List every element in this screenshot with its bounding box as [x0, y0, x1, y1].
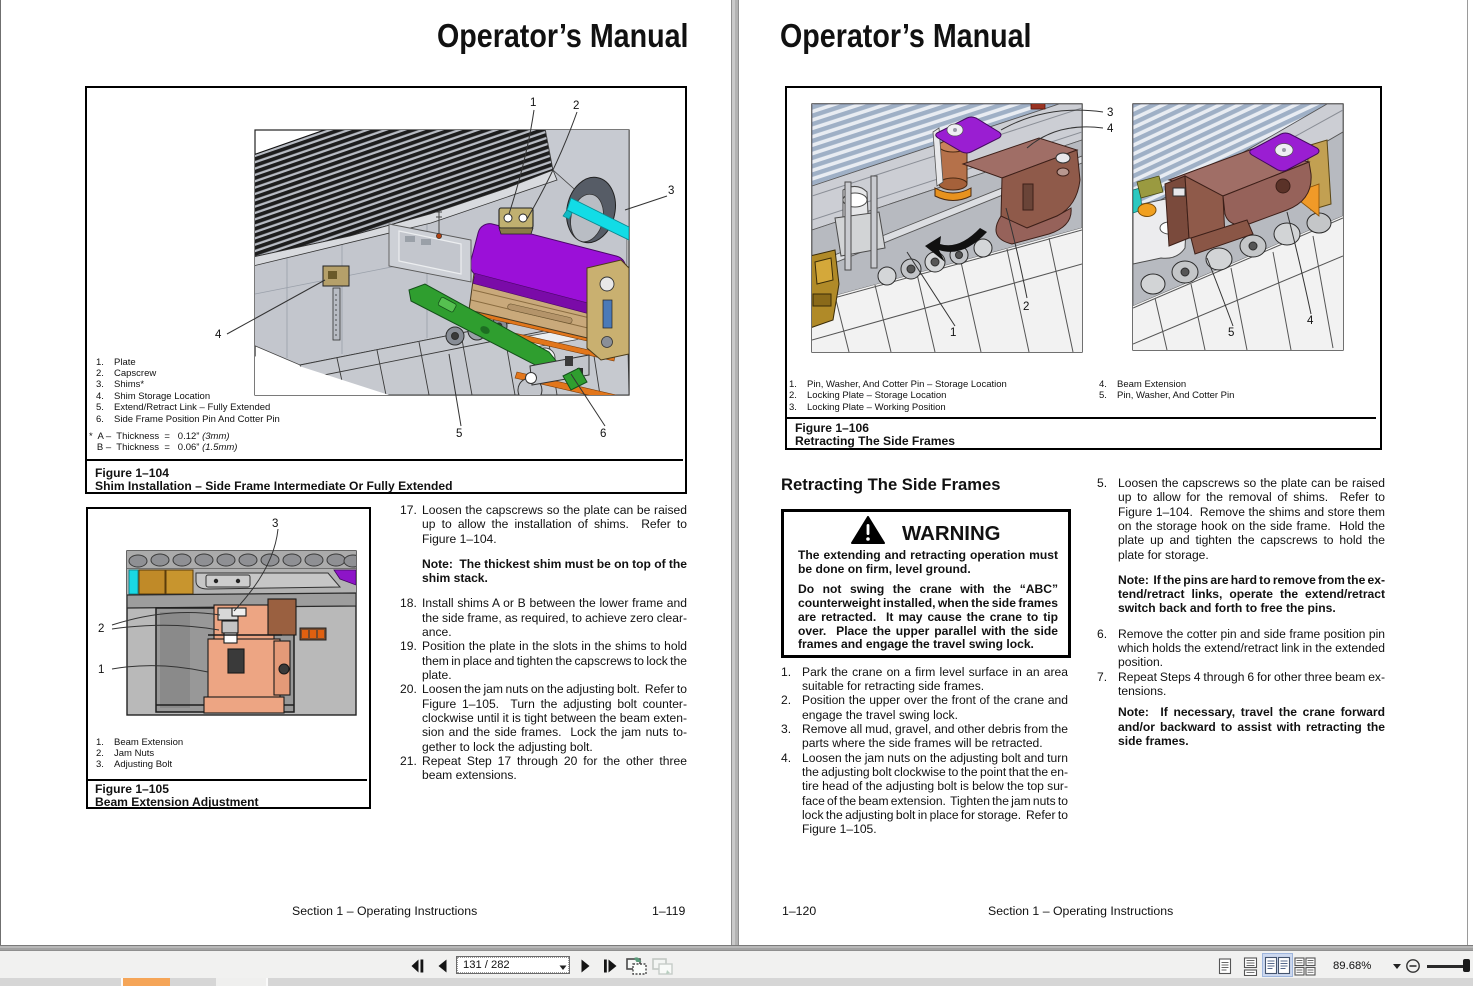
- svg-text:3: 3: [1107, 107, 1113, 119]
- svg-text:2: 2: [1023, 301, 1029, 313]
- svg-text:4: 4: [1307, 315, 1314, 327]
- svg-text:1: 1: [950, 327, 956, 339]
- svg-text:2: 2: [98, 623, 104, 635]
- svg-text:2: 2: [573, 100, 579, 112]
- svg-text:4: 4: [215, 329, 222, 341]
- svg-text:6: 6: [600, 428, 606, 440]
- svg-text:5: 5: [1228, 327, 1234, 339]
- svg-text:3: 3: [668, 185, 674, 197]
- svg-text:4: 4: [1107, 123, 1114, 135]
- svg-text:1: 1: [530, 97, 536, 109]
- svg-text:5: 5: [456, 428, 462, 440]
- svg-text:3: 3: [272, 518, 278, 530]
- svg-text:1: 1: [98, 664, 104, 676]
